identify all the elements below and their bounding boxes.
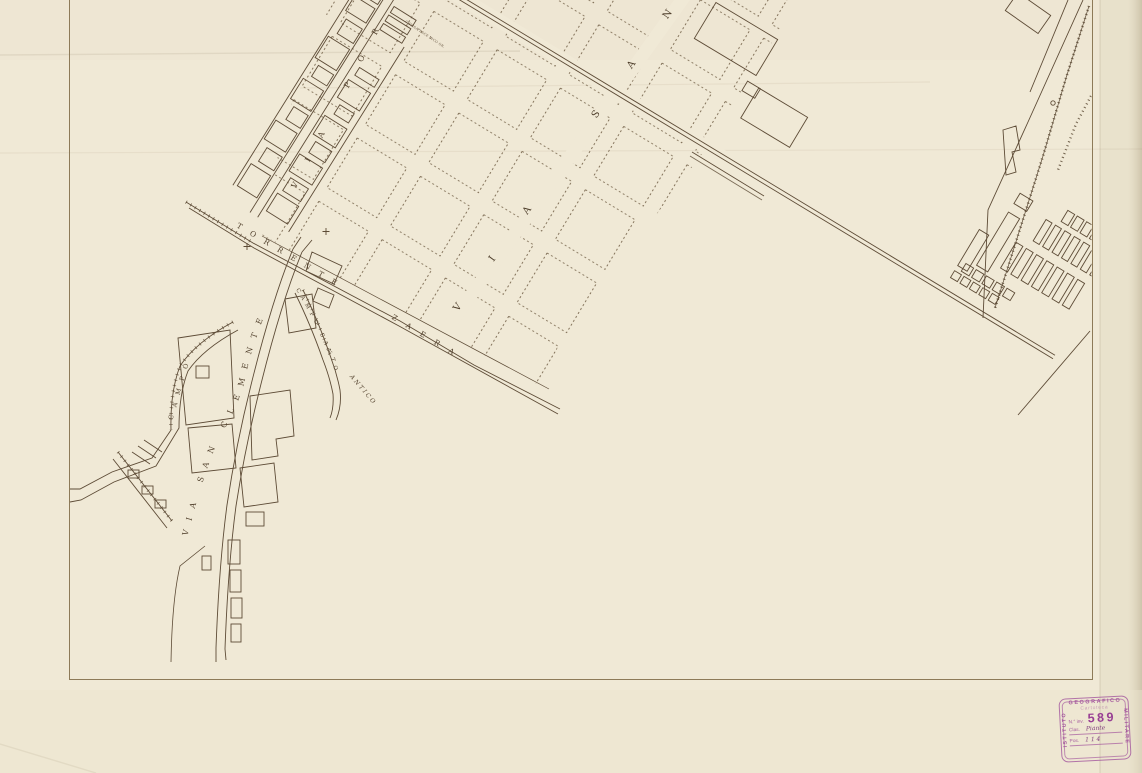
stamp-clas-label: Clas. <box>1069 728 1080 734</box>
stamp-clas-value: Piante <box>1086 724 1106 732</box>
archive-stamp: GEOGRAFICO ISTITUTO MILITARE Cartoteca N… <box>1058 695 1131 763</box>
map-scan-svg: VIA POR VIA SAN TORRENTE ZAERA VIA SAN C… <box>0 0 1142 773</box>
stamp-pos-value: 1 1 4 <box>1085 735 1101 743</box>
stamp-inventory-number: 589 <box>1087 711 1116 722</box>
stamp-pos-label: Pos. <box>1069 738 1079 743</box>
map-sheet: VIA POR VIA SAN TORRENTE ZAERA VIA SAN C… <box>0 0 1142 773</box>
stamp-inv-label: N.° inv. <box>1068 719 1083 725</box>
